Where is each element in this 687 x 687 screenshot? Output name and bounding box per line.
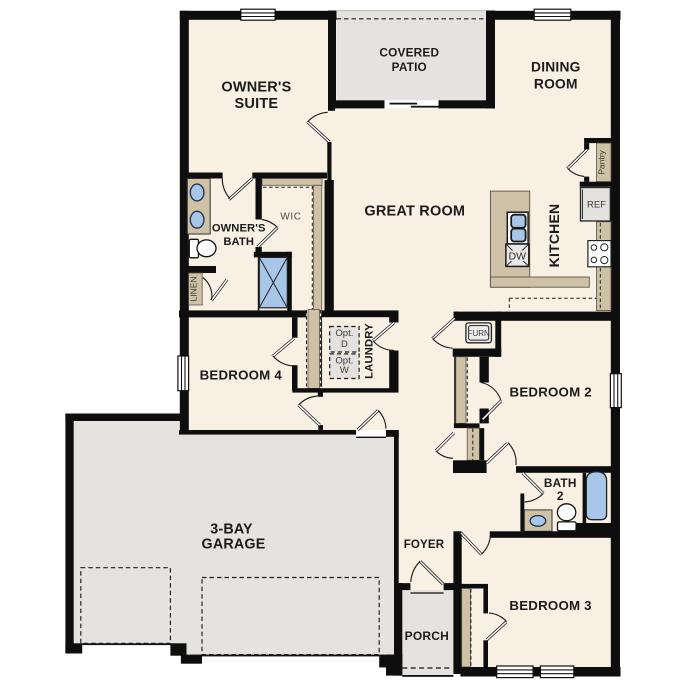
svg-text:PORCH: PORCH [405,629,449,643]
svg-text:GARAGE: GARAGE [202,537,266,553]
svg-text:WIC: WIC [280,212,301,223]
svg-text:BEDROOM 2: BEDROOM 2 [510,384,592,399]
svg-text:LAUNDRY: LAUNDRY [364,323,376,379]
svg-text:2: 2 [557,489,564,503]
svg-text:D: D [341,339,348,350]
svg-text:BATH: BATH [544,476,577,490]
svg-text:BATH: BATH [223,236,254,248]
svg-text:Opt.: Opt. [335,328,353,339]
svg-text:REF: REF [587,200,606,211]
svg-text:FOYER: FOYER [404,539,445,551]
svg-text:Pantry: Pantry [597,149,607,174]
svg-text:PATIO: PATIO [392,60,427,74]
svg-text:SUITE: SUITE [235,96,279,112]
svg-text:GREAT ROOM: GREAT ROOM [364,203,465,219]
svg-text:3-BAY: 3-BAY [210,522,253,538]
svg-text:DINING: DINING [531,60,581,75]
svg-text:COVERED: COVERED [379,46,439,60]
svg-text:KITCHEN: KITCHEN [546,204,562,268]
svg-text:LINEN: LINEN [189,276,199,301]
svg-text:ROOM: ROOM [534,77,578,92]
svg-text:OWNER'S: OWNER'S [221,79,291,95]
svg-text:OWNER'S: OWNER'S [212,223,266,235]
svg-text:BEDROOM 4: BEDROOM 4 [200,368,283,383]
svg-text:FURN: FURN [468,329,490,338]
svg-text:W: W [340,365,349,376]
svg-text:DW: DW [509,250,527,262]
svg-text:BEDROOM 3: BEDROOM 3 [509,598,591,613]
